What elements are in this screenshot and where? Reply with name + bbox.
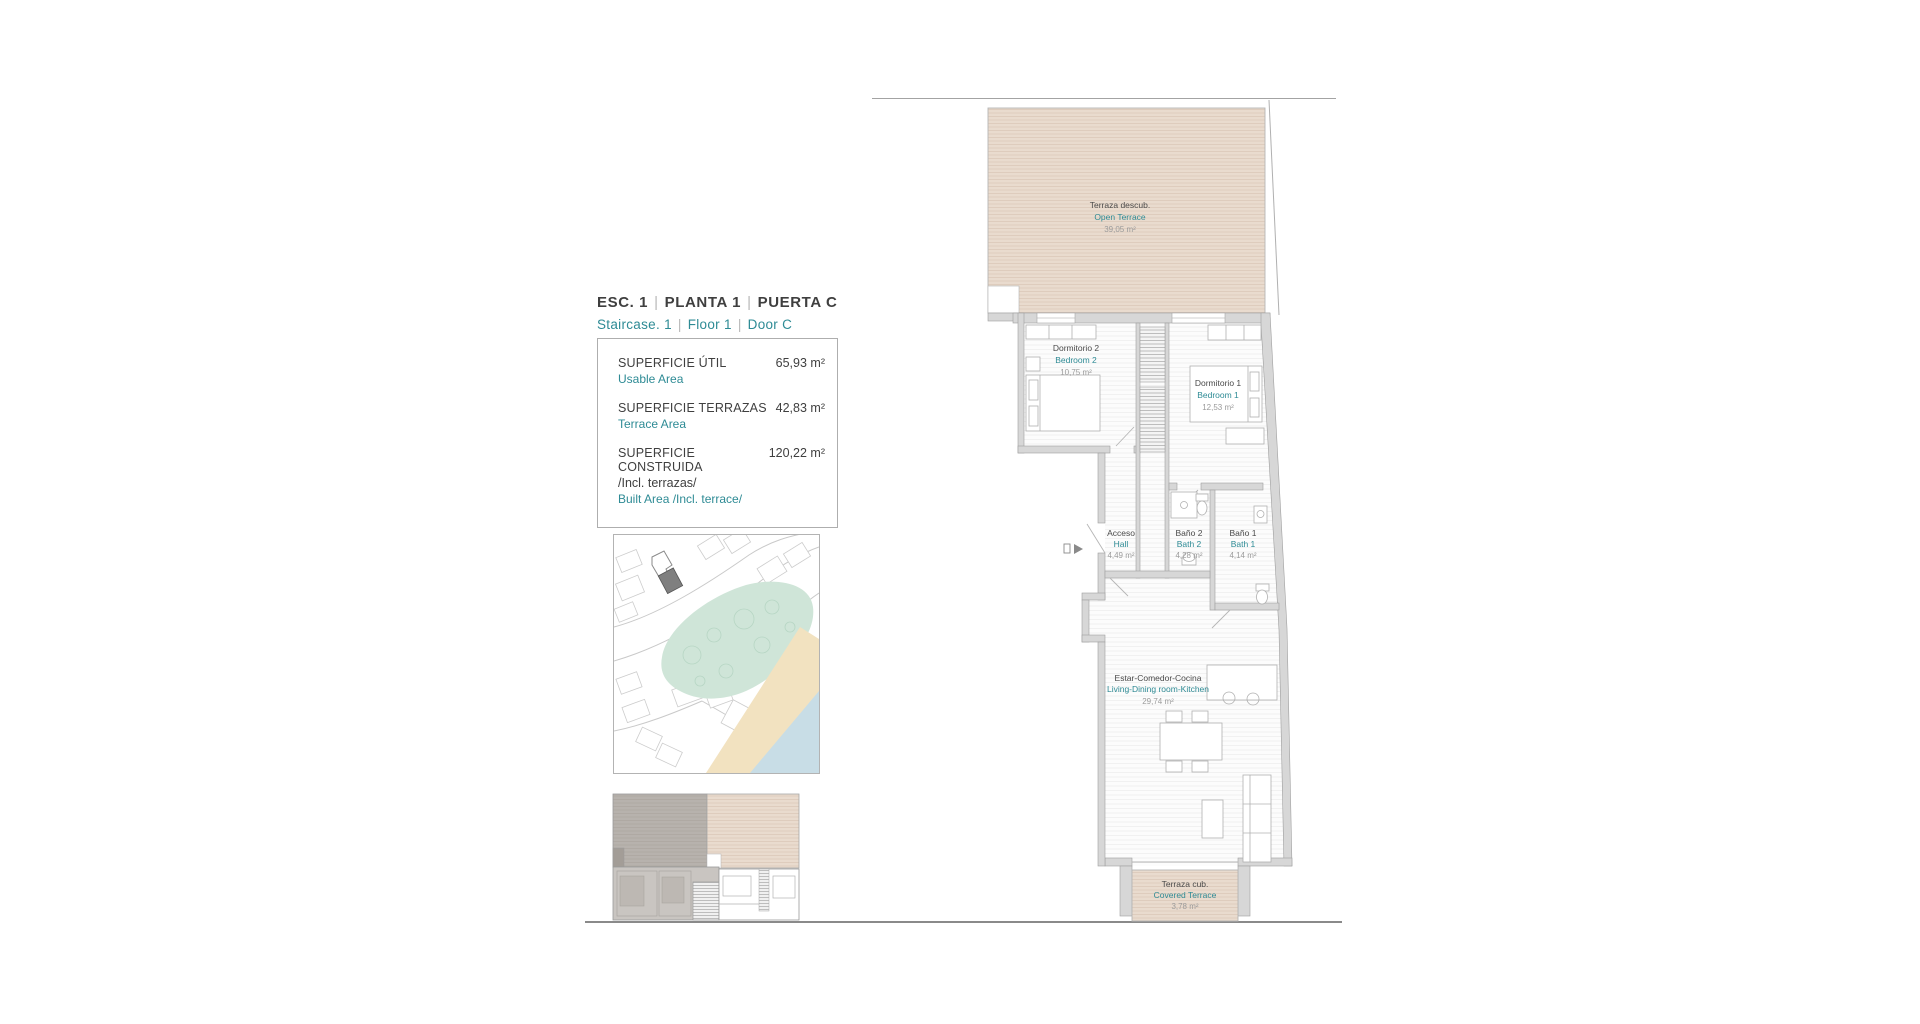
built-area-note-es: /Incl. terrazas/ — [618, 476, 825, 490]
entrance-arrow-icon — [1064, 544, 1083, 554]
dining-table-icon — [1160, 723, 1222, 760]
keyplan-terrace-notch — [707, 854, 721, 868]
keyplan-other-unit — [613, 867, 719, 920]
room-label-en: Hall — [1114, 539, 1129, 549]
room-area: 4,49 m² — [1107, 551, 1134, 560]
room-label-es: Acceso — [1107, 528, 1135, 538]
right-boundary-line — [1269, 100, 1279, 315]
room-label-en: Bedroom 2 — [1055, 355, 1097, 365]
chair-icon — [1192, 711, 1208, 722]
wardrobe-icon — [1208, 325, 1261, 340]
staircase-icon — [1140, 327, 1165, 452]
sofa-icon — [1243, 775, 1271, 862]
room-label-es: Terraza descub. — [1090, 200, 1150, 210]
room-bath-2: Baño 2 Bath 2 4,28 m² — [1175, 528, 1202, 560]
apartment-floor-plan: Terraza descub. Open Terrace 39,05 m² — [858, 88, 1338, 933]
built-area-value: 120,22 m² — [769, 446, 825, 460]
site-location-map — [613, 534, 820, 774]
separator: | — [648, 294, 665, 311]
separator: | — [741, 294, 758, 311]
terrace-area-label-en: Terrace Area — [618, 417, 825, 431]
chair-icon — [1166, 761, 1182, 772]
built-area-label-es: SUPERFICIE CONSTRUIDA — [618, 446, 769, 474]
sink-icon — [1254, 506, 1267, 523]
site-map-drawing — [614, 535, 819, 773]
usable-area-label-es: SUPERFICIE ÚTIL — [618, 356, 727, 370]
usable-area-row: SUPERFICIE ÚTIL 65,93 m² Usable Area — [618, 356, 825, 386]
door-letter-en: Door C — [748, 317, 793, 332]
wardrobe-icon — [1026, 325, 1096, 339]
kitchen-counter-icon — [1207, 665, 1277, 700]
separator: | — [732, 317, 748, 332]
room-bath-1: Baño 1 Bath 1 4,14 m² — [1229, 528, 1256, 560]
floor-number: PLANTA 1 — [665, 294, 741, 311]
separator: | — [672, 317, 688, 332]
room-label-es: Baño 1 — [1230, 528, 1257, 538]
key-plan — [611, 792, 811, 926]
built-area-row: SUPERFICIE CONSTRUIDA 120,22 m² /Incl. t… — [618, 446, 825, 506]
floor-plan-sheet: ESC. 1|PLANTA 1|PUERTA C Staircase. 1|Fl… — [0, 0, 1920, 1024]
room-area: 10,75 m² — [1060, 368, 1092, 377]
room-label-en: Covered Terrace — [1154, 890, 1217, 900]
room-area: 4,28 m² — [1175, 551, 1202, 560]
terrace-area-value: 42,83 m² — [776, 401, 825, 415]
subject-building-marker — [652, 551, 683, 594]
usable-area-label-en: Usable Area — [618, 372, 825, 386]
room-label-en: Open Terrace — [1094, 212, 1146, 222]
coffee-table-icon — [1202, 800, 1223, 838]
chair-icon — [1192, 761, 1208, 772]
keyplan-chimney — [613, 848, 624, 867]
chair-icon — [1166, 711, 1182, 722]
nightstand-icon — [1026, 357, 1040, 371]
room-label-es: Dormitorio 1 — [1195, 378, 1242, 388]
keyplan-other-terrace — [613, 794, 707, 867]
door-letter: PUERTA C — [758, 294, 838, 311]
room-label-en: Living-Dining room-Kitchen — [1107, 684, 1209, 694]
room-label-en: Bath 2 — [1177, 539, 1202, 549]
room-label-es: Terraza cub. — [1162, 879, 1209, 889]
plan-reference: ESC. 1|PLANTA 1|PUERTA C Staircase. 1|Fl… — [597, 294, 897, 332]
esc-number: ESC. 1 — [597, 294, 648, 311]
room-label-es: Estar-Comedor-Cocina — [1115, 673, 1202, 683]
terrace-area-label-es: SUPERFICIE TERRAZAS — [618, 401, 767, 415]
shower-icon — [1171, 492, 1197, 518]
room-covered-terrace: Terraza cub. Covered Terrace 3,78 m² — [1132, 870, 1238, 921]
floor-number-en: Floor 1 — [688, 317, 732, 332]
room-label-es: Baño 2 — [1176, 528, 1203, 538]
plan-reference-es: ESC. 1|PLANTA 1|PUERTA C — [597, 294, 897, 311]
toilet-icon — [1196, 494, 1208, 501]
built-area-label-en: Built Area /Incl. terrace/ — [618, 492, 825, 506]
room-label-es: Dormitorio 2 — [1053, 343, 1100, 353]
room-area: 29,74 m² — [1142, 697, 1174, 706]
usable-area-value: 65,93 m² — [776, 356, 825, 370]
room-label-en: Bedroom 1 — [1197, 390, 1239, 400]
room-open-terrace: Terraza descub. Open Terrace 39,05 m² — [988, 108, 1265, 313]
staircase-number-en: Staircase. 1 — [597, 317, 672, 332]
room-area: 39,05 m² — [1104, 225, 1136, 234]
room-area: 3,78 m² — [1171, 902, 1198, 911]
kitchen-furniture — [1207, 665, 1277, 705]
room-area: 4,14 m² — [1229, 551, 1256, 560]
terrace-area-row: SUPERFICIE TERRAZAS 42,83 m² Terrace Are… — [618, 401, 825, 431]
surface-area-box: SUPERFICIE ÚTIL 65,93 m² Usable Area SUP… — [597, 338, 838, 528]
dresser-icon — [1226, 428, 1264, 444]
plan-reference-en: Staircase. 1|Floor 1|Door C — [597, 317, 897, 332]
room-area: 12,53 m² — [1202, 403, 1234, 412]
room-label-en: Bath 1 — [1231, 539, 1256, 549]
keyplan-subject-unit — [719, 869, 799, 920]
